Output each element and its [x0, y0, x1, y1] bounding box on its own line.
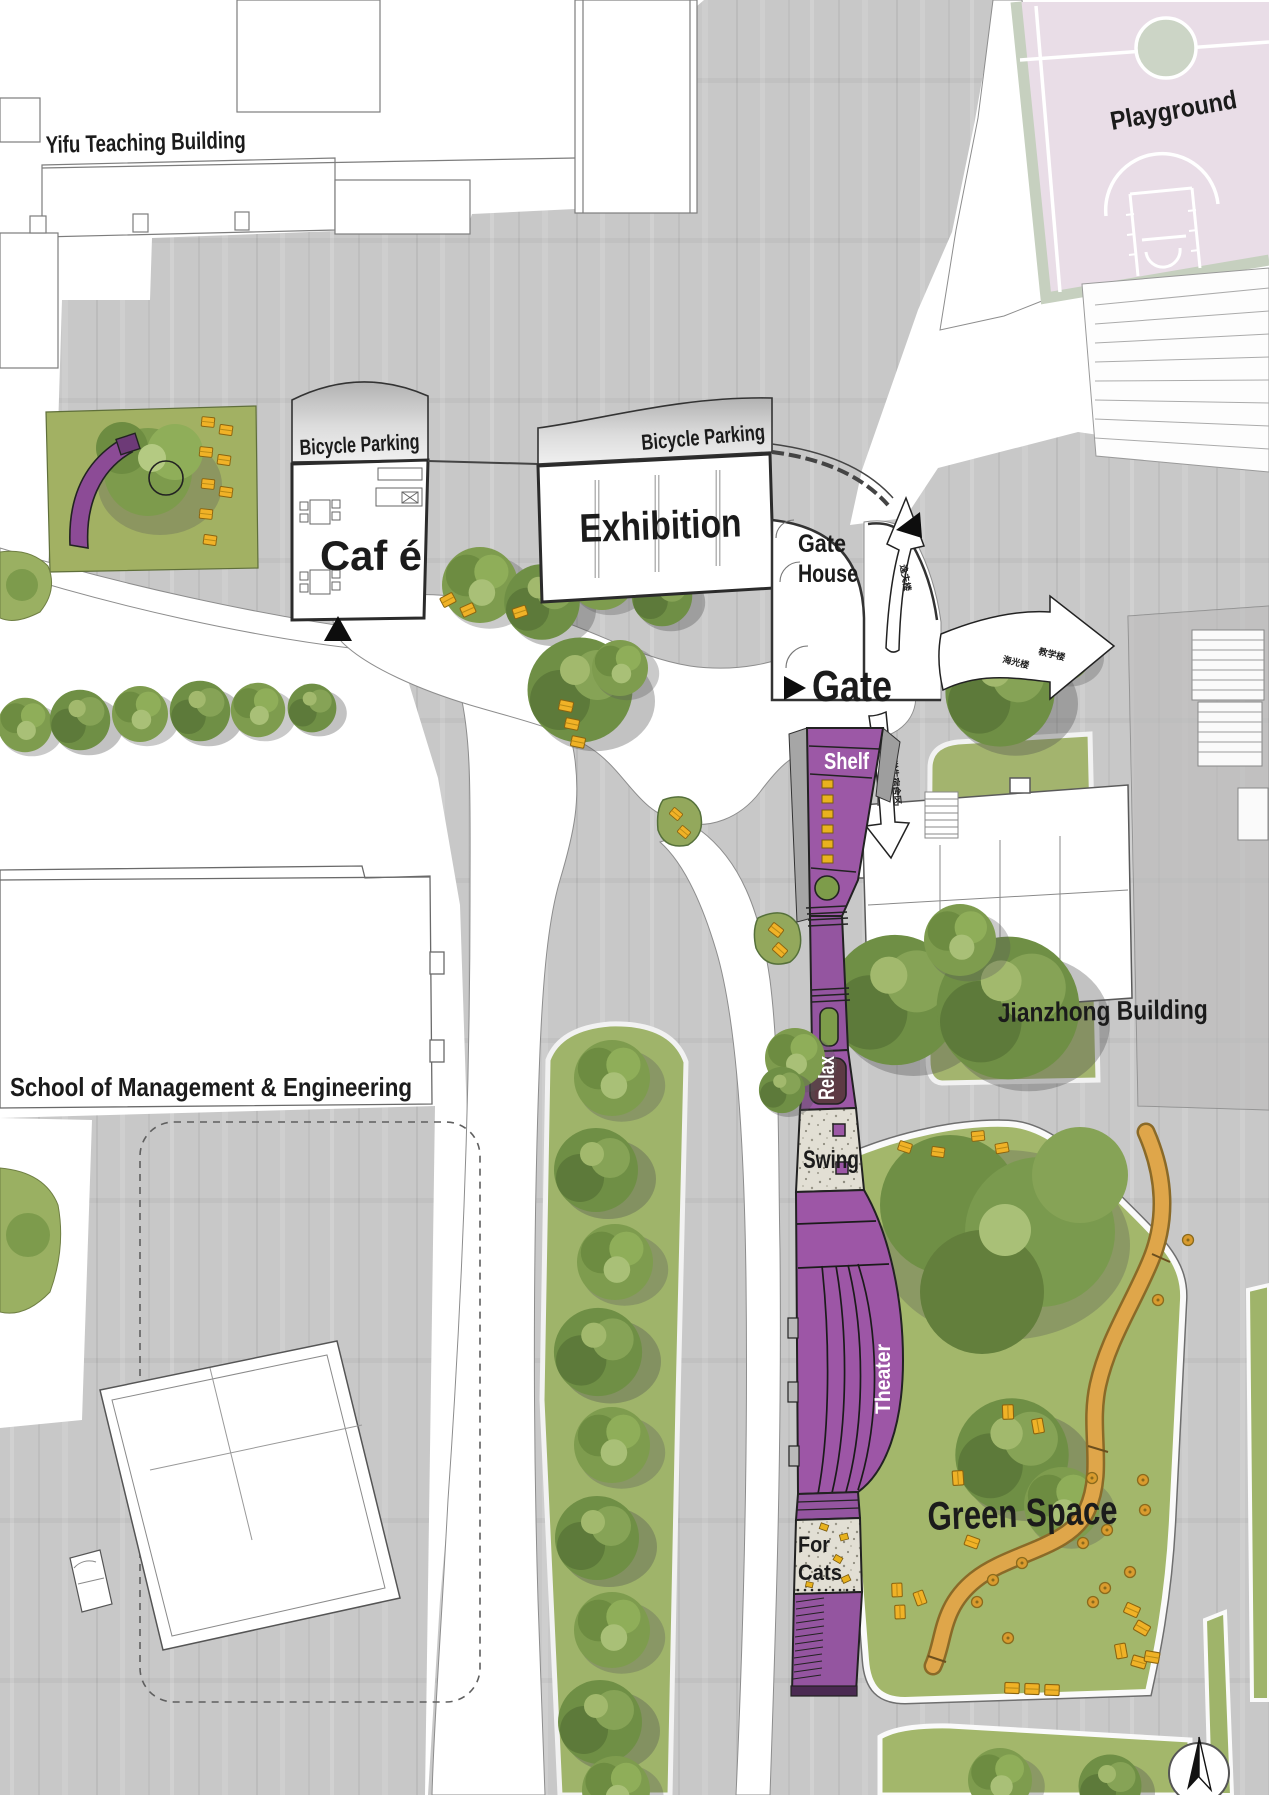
- label-theater: Theater: [872, 1344, 895, 1414]
- label-shelf: Shelf: [824, 748, 869, 774]
- label-yifu-building: Yifu Teaching Building: [45, 127, 246, 159]
- center-circle: [1136, 18, 1196, 78]
- site-plan: 逸夫楼 海光楼 教学楼 学生宿舍区: [0, 0, 1269, 1795]
- label-green-space: Green Space: [927, 1488, 1118, 1539]
- playground-court: [1016, 2, 1269, 298]
- label-cafe: Caf é: [320, 532, 422, 579]
- label-swing: Swing: [803, 1146, 859, 1174]
- site-plan-svg: 逸夫楼 海光楼 教学楼 学生宿舍区: [0, 0, 1269, 1795]
- label-for-cats-1: For: [798, 1532, 830, 1557]
- grass-slot: [820, 1008, 838, 1046]
- dotted-divider: [797, 1589, 856, 1592]
- label-school: School of Management & Engineering: [10, 1072, 412, 1102]
- east-concrete-building: [1128, 606, 1269, 1110]
- green-strip: [542, 1024, 686, 1795]
- cafe-lawn: [46, 406, 258, 572]
- swing-pad: [833, 1124, 845, 1136]
- label-for-cats-2: Cats: [798, 1560, 842, 1585]
- label-gate-house-1: Gate: [798, 530, 846, 558]
- terrace-steps: [1082, 268, 1269, 472]
- label-relax: Relax: [814, 1055, 839, 1100]
- promenade-tree-pot: [815, 876, 839, 900]
- label-jianzhong: Jianzhong Building: [998, 994, 1208, 1028]
- label-gate: Gate: [812, 662, 892, 711]
- label-exhibition: Exhibition: [579, 501, 742, 551]
- label-gate-house-2: House: [798, 560, 858, 588]
